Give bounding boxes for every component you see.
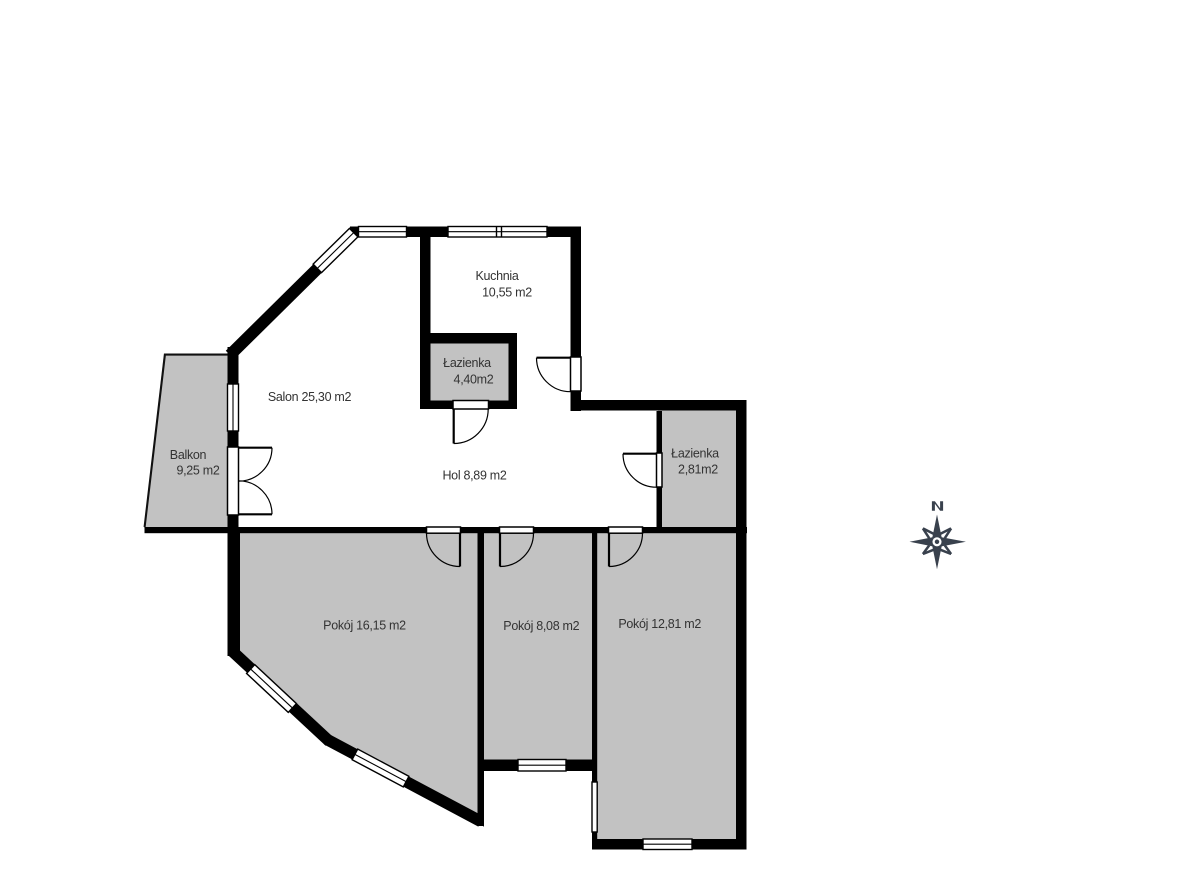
svg-text:Hol 8,89 m2: Hol 8,89 m2: [442, 469, 506, 483]
svg-text:Pokój 8,08 m2: Pokój 8,08 m2: [503, 619, 579, 633]
svg-text:Pokój 12,81 m2: Pokój 12,81 m2: [618, 617, 701, 631]
svg-text:9,25 m2: 9,25 m2: [176, 464, 219, 478]
svg-text:2,81m2: 2,81m2: [678, 463, 718, 477]
svg-text:Kuchnia: Kuchnia: [475, 269, 518, 283]
svg-text:Łazienka: Łazienka: [443, 356, 491, 370]
svg-text:Salon 25,30 m2: Salon 25,30 m2: [268, 390, 352, 404]
svg-text:10,55 m2: 10,55 m2: [482, 286, 532, 300]
svg-text:Łazienka: Łazienka: [671, 447, 719, 461]
svg-text:Balkon: Balkon: [170, 448, 207, 462]
svg-text:4,40m2: 4,40m2: [454, 373, 494, 387]
svg-text:Pokój 16,15 m2: Pokój 16,15 m2: [323, 619, 406, 633]
